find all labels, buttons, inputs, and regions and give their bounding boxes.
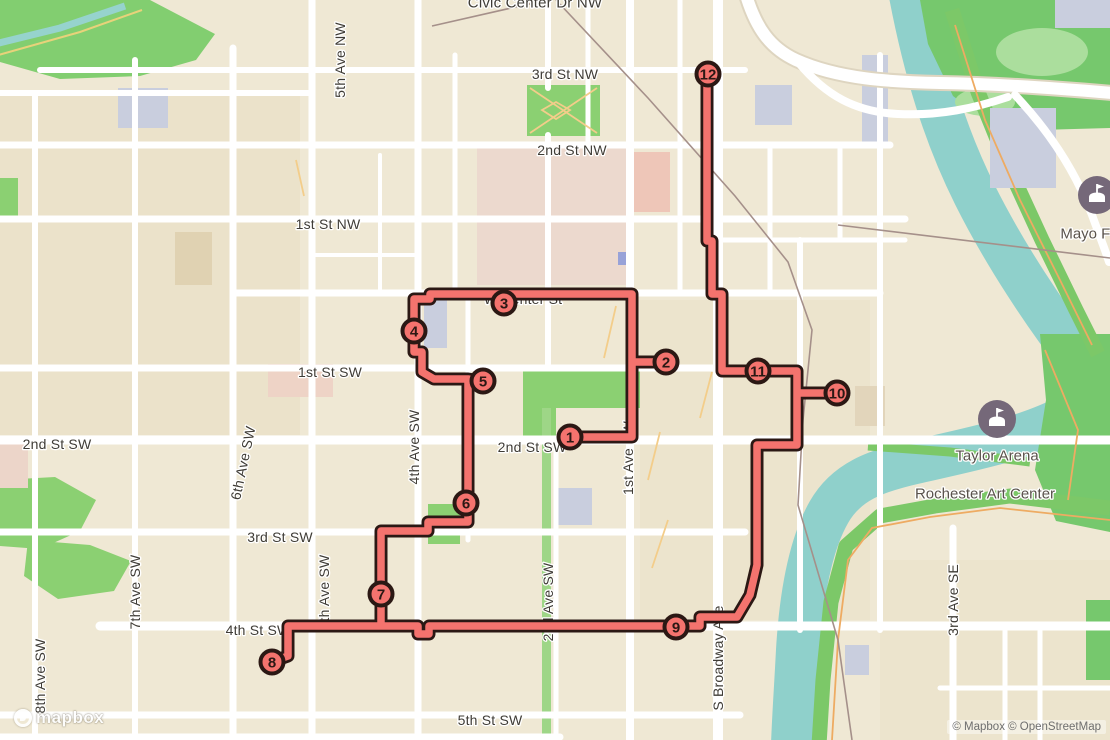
route-marker-number: 12 (700, 66, 717, 83)
street-label: 2nd St SW (23, 436, 92, 452)
street-label: 7th Ave SW (127, 554, 143, 629)
route-marker-number: 5 (479, 373, 487, 390)
route-marker-number: 9 (672, 619, 680, 636)
street-label: 8th Ave SW (32, 638, 48, 713)
route-marker-1[interactable]: 1 (559, 426, 582, 449)
street-label: 4th St SW (226, 622, 291, 638)
poi-rochester-art-center[interactable]: Rochester Art Center (915, 485, 1055, 502)
route-marker-number: 8 (268, 654, 276, 671)
route-marker-number: 11 (750, 363, 766, 380)
route-marker-5[interactable]: 5 (472, 370, 495, 393)
route-marker-number: 1 (566, 429, 574, 446)
mapbox-logo[interactable]: mapbox (14, 708, 104, 728)
route-marker-number: 2 (662, 354, 670, 371)
street-label: 5th St SW (458, 712, 523, 728)
poi-label: Taylor Arena (955, 447, 1039, 464)
poi-label: Mayo Field (1060, 225, 1110, 242)
route-marker-7[interactable]: 7 (370, 583, 393, 606)
map-canvas[interactable]: Civic Center Dr NW3rd St NW2nd St NW1st … (0, 0, 1110, 740)
route-marker-number: 3 (500, 295, 508, 312)
mapbox-logo-text: mapbox (36, 708, 104, 728)
route-marker-number: 4 (410, 323, 419, 340)
street-label: 3rd St SW (247, 529, 313, 545)
route-marker-11[interactable]: 11 (747, 360, 770, 383)
poi-label: Rochester Art Center (915, 485, 1055, 502)
route-marker-3[interactable]: 3 (493, 292, 516, 315)
street-label: 5th Ave NW (332, 22, 348, 98)
route-marker-number: 6 (462, 495, 470, 512)
stadium-dome-icon (1089, 193, 1105, 203)
route-marker-4[interactable]: 4 (403, 320, 426, 343)
route-marker-12[interactable]: 12 (697, 63, 720, 86)
street-label: 4th Ave SW (406, 409, 422, 484)
street-label: 5th Ave SW (316, 554, 332, 629)
mapbox-logo-icon (14, 709, 32, 727)
stadium-dome-icon (989, 417, 1005, 427)
street-label: 1st St SW (298, 364, 363, 380)
route-marker-6[interactable]: 6 (455, 492, 478, 515)
route-marker-2[interactable]: 2 (655, 351, 678, 374)
street-label: 3rd St NW (532, 66, 599, 82)
street-label: 1st St NW (296, 216, 361, 232)
map-attribution[interactable]: © Mapbox © OpenStreetMap (947, 720, 1106, 734)
map-viewport[interactable]: Civic Center Dr NW3rd St NW2nd St NW1st … (0, 0, 1110, 740)
route-marker-9[interactable]: 9 (665, 616, 688, 639)
street-label: 3rd Ave SE (945, 564, 961, 636)
street-label: 2nd St NW (537, 142, 607, 158)
route-marker-number: 10 (829, 385, 846, 402)
route-marker-8[interactable]: 8 (261, 651, 284, 674)
street-label: Civic Center Dr NW (468, 0, 603, 11)
street-label: 2nd St SW (498, 439, 567, 455)
route-marker-10[interactable]: 10 (826, 382, 849, 405)
route-marker-number: 7 (377, 586, 385, 603)
